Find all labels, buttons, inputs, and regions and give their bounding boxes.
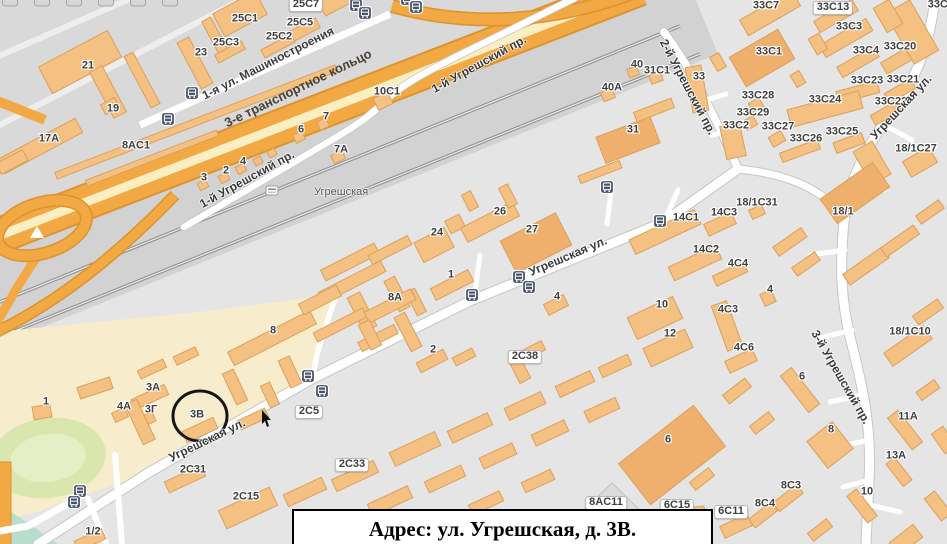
map-graphics (0, 0, 947, 544)
transit-stop-icon[interactable] (3, 0, 18, 6)
bus-stop-icon[interactable] (466, 289, 479, 302)
bus-stop-icon[interactable] (654, 215, 667, 228)
railway-station-icon[interactable] (266, 186, 278, 195)
address-caption: Адрес: ул. Угрешская, д. 3В. (292, 509, 713, 544)
address-text: Адрес: ул. Угрешская, д. 3В. (369, 517, 636, 542)
building (32, 404, 52, 420)
bus-stop-icon[interactable] (316, 385, 329, 398)
bus-stop-icon[interactable] (68, 496, 81, 509)
bus-stop-icon[interactable] (162, 113, 175, 126)
bus-stop-icon[interactable] (302, 370, 315, 383)
transit-stop-icon[interactable] (99, 0, 114, 6)
transit-stop-icon[interactable] (35, 0, 50, 6)
transit-stop-icon[interactable] (163, 0, 178, 6)
transit-stop-icon[interactable] (67, 0, 82, 6)
bus-stop-icon[interactable] (186, 87, 199, 100)
map-canvas[interactable]: 211917A8AC12325C325C125C225C525C710C1767… (0, 0, 947, 544)
bus-stop-icon[interactable] (359, 7, 372, 20)
bus-stop-icon[interactable] (601, 181, 614, 194)
transit-stop-icon[interactable] (131, 0, 146, 6)
bus-stop-icon[interactable] (523, 281, 536, 294)
bus-stop-icon[interactable] (410, 1, 423, 14)
